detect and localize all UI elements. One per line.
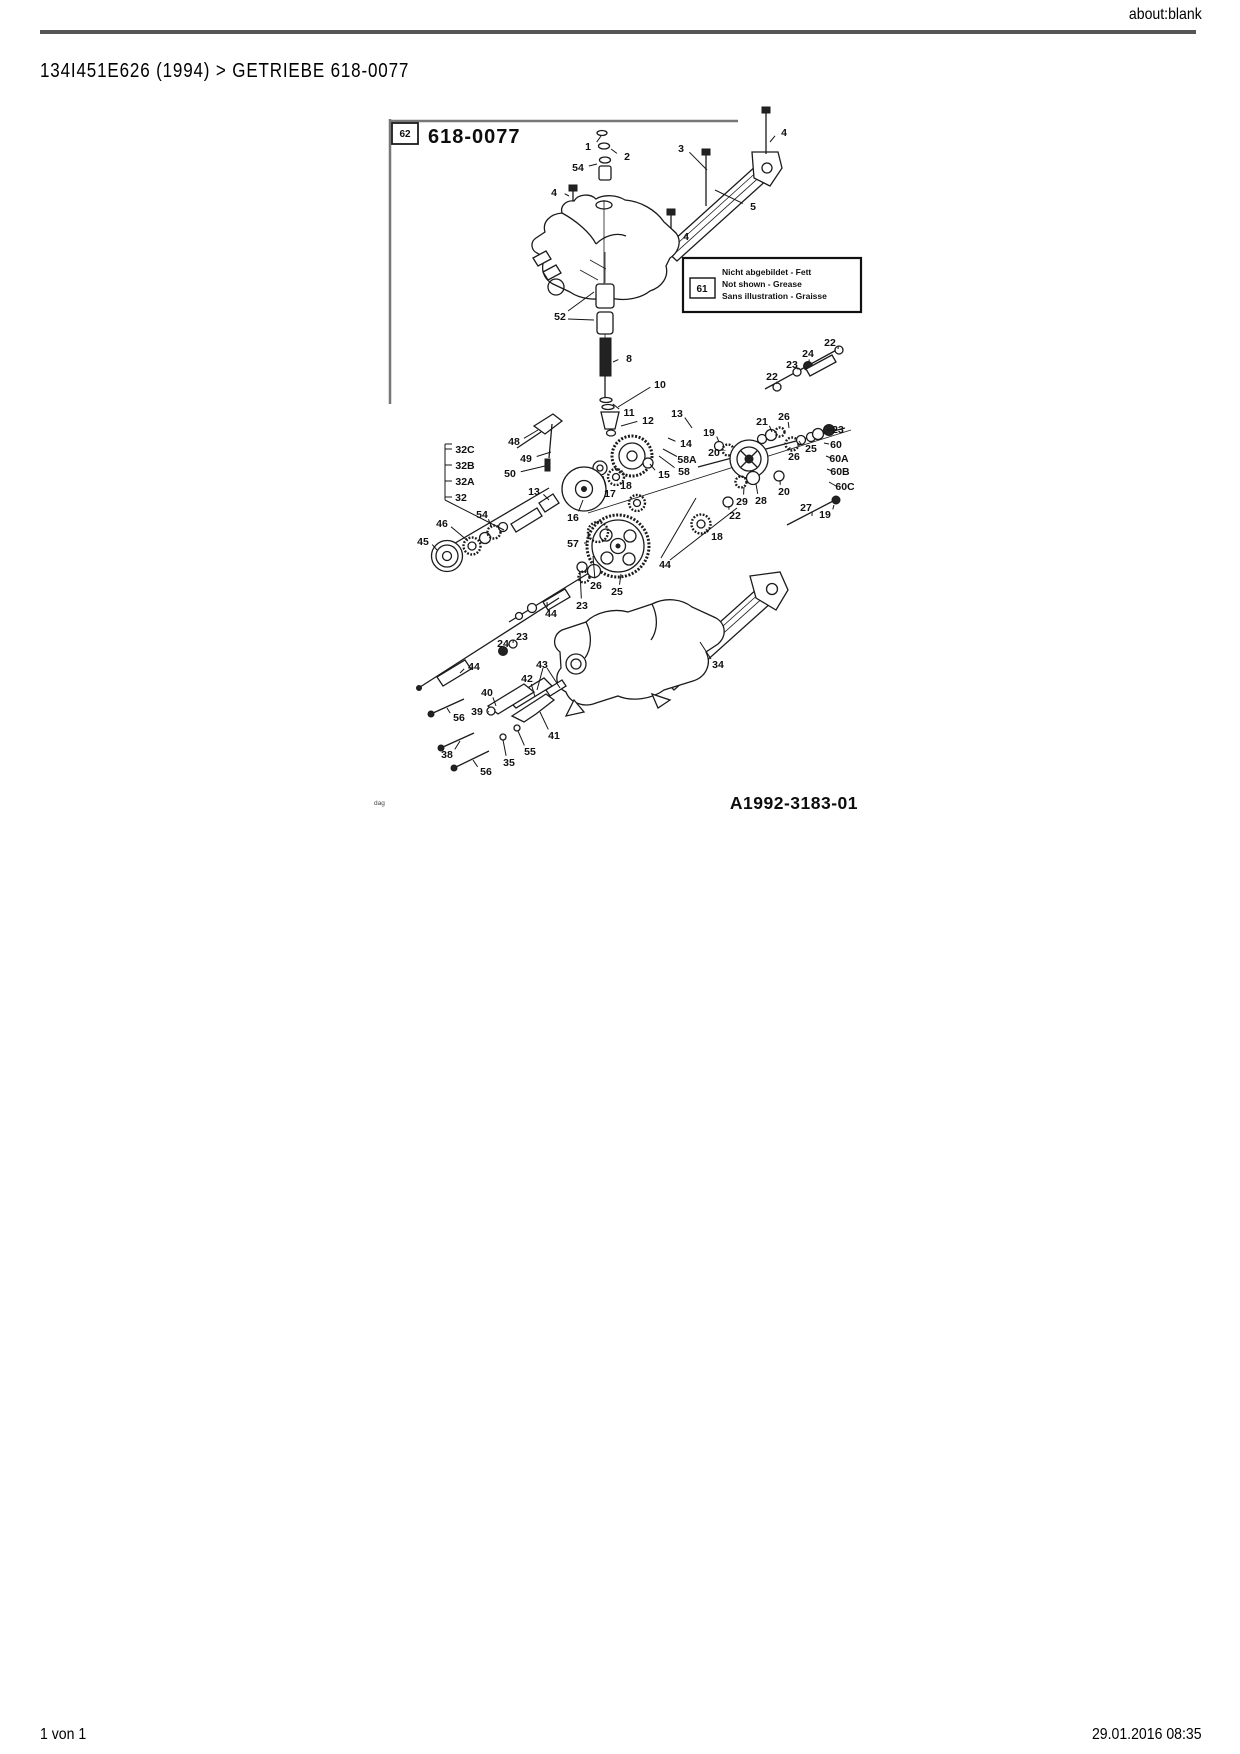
- part-label-22: 22: [729, 510, 741, 522]
- part-label-54: 54: [572, 162, 584, 174]
- part-label-26: 26: [788, 451, 800, 463]
- legend-line-en: Not shown - Grease: [722, 279, 802, 289]
- part-label-1: 1: [585, 141, 591, 153]
- part-label-12: 12: [642, 415, 654, 427]
- part-label-40: 40: [481, 687, 493, 699]
- part-label-29: 29: [736, 496, 748, 508]
- part-label-13: 13: [528, 486, 540, 498]
- diagram-title: 618-0077: [428, 126, 521, 148]
- part-label-23: 23: [832, 424, 844, 436]
- part-label-22: 22: [766, 371, 778, 383]
- part-label-23: 23: [516, 631, 528, 643]
- part-label-52: 52: [554, 311, 566, 323]
- header-divider: [40, 30, 1196, 34]
- part-label-49: 49: [520, 453, 532, 465]
- part-label-25: 25: [805, 443, 817, 455]
- part-label-60: 60: [830, 439, 842, 451]
- print-header-url: about:blank: [1129, 6, 1202, 24]
- part-label-55: 55: [524, 746, 536, 758]
- part-label-26: 26: [590, 580, 602, 592]
- part-label-13: 13: [671, 408, 683, 420]
- part-label-48: 48: [508, 436, 520, 448]
- part-label-24: 24: [802, 348, 814, 360]
- upper-left-axle-assembly: [432, 488, 560, 572]
- part-label-60C: 60C: [835, 481, 855, 493]
- part-label-16: 16: [567, 512, 579, 524]
- part-label-20: 20: [708, 447, 720, 459]
- part-label-22: 22: [824, 337, 836, 349]
- part-label-20: 20: [778, 486, 790, 498]
- legend-box: 61 Nicht abgebildet - Fett Not shown - G…: [683, 258, 861, 312]
- part-label-42: 42: [521, 673, 533, 685]
- part-label-11: 11: [623, 407, 634, 419]
- legend-ref-number: 61: [696, 284, 708, 295]
- part-label-60A: 60A: [829, 453, 849, 465]
- part-label-58: 58: [678, 466, 690, 478]
- drawing-number: A1992-3183-01: [730, 793, 858, 813]
- part-label-15: 15: [658, 469, 670, 481]
- part-label-46: 46: [436, 518, 448, 530]
- part-label-56: 56: [480, 766, 492, 778]
- part-label-39: 39: [471, 706, 483, 718]
- part-label-41: 41: [548, 730, 560, 742]
- part-label-56: 56: [453, 712, 465, 724]
- part-label-28: 28: [755, 495, 767, 507]
- part-label-23: 23: [576, 600, 588, 612]
- print-footer-pagecount: 1 von 1: [40, 1726, 86, 1744]
- diagram-watermark: dag: [374, 800, 385, 807]
- part-label-4: 4: [781, 127, 787, 139]
- part-label-19: 19: [819, 509, 831, 521]
- legend-line-fr: Sans illustration - Graisse: [722, 291, 827, 301]
- lower-gearbox-housing: [555, 600, 725, 716]
- exploded-parts-diagram: 62 618-0077 61 Nicht a: [370, 100, 870, 820]
- breadcrumb: 134I451E626 (1994) > GETRIEBE 618-0077: [40, 60, 409, 83]
- part-label-35: 35: [503, 757, 515, 769]
- part-label-32A: 32A: [455, 476, 475, 488]
- part-label-38: 38: [441, 749, 453, 761]
- part-label-21: 21: [756, 416, 768, 428]
- part-label-25: 25: [611, 586, 623, 598]
- part-label-58A: 58A: [677, 454, 697, 466]
- upper-axle-rail: [664, 152, 782, 261]
- part-label-18: 18: [620, 480, 632, 492]
- printed-page: { "page": { "header_right": "about:blank…: [0, 0, 1240, 1754]
- part-label-27: 27: [800, 502, 812, 514]
- print-footer-datetime: 29.01.2016 08:35: [1092, 1726, 1202, 1744]
- part-label-8: 8: [626, 353, 632, 365]
- ref-box-number: 62: [399, 129, 411, 140]
- legend-line-de: Nicht abgebildet - Fett: [722, 267, 811, 277]
- part-label-10: 10: [654, 379, 666, 391]
- part-label-50: 50: [504, 468, 516, 480]
- part-label-5: 5: [750, 201, 756, 213]
- part-label-44: 44: [545, 608, 557, 620]
- part-label-57: 57: [567, 538, 579, 550]
- part-label-60B: 60B: [830, 466, 850, 478]
- part-label-26: 26: [778, 411, 790, 423]
- part-label-44: 44: [468, 661, 480, 673]
- part-label-17: 17: [604, 488, 616, 500]
- part-label-4: 4: [551, 187, 557, 199]
- part-label-2: 2: [624, 151, 630, 163]
- part-label-44: 44: [659, 559, 671, 571]
- lower-left-axle-assembly: [417, 598, 560, 691]
- part-label-3: 3: [678, 143, 684, 155]
- part-label-24: 24: [497, 638, 509, 650]
- part-label-32B: 32B: [455, 460, 475, 472]
- part-label-32C: 32C: [455, 444, 475, 456]
- part-label-19: 19: [703, 427, 715, 439]
- part-label-4: 4: [683, 231, 689, 243]
- part-label-32: 32: [455, 492, 467, 504]
- part-label-34: 34: [712, 659, 724, 671]
- part-label-43: 43: [536, 659, 548, 671]
- part-label-18: 18: [711, 531, 723, 543]
- part-label-14: 14: [680, 438, 692, 450]
- part-label-54: 54: [476, 509, 488, 521]
- part-label-45: 45: [417, 536, 429, 548]
- part-label-23: 23: [786, 359, 798, 371]
